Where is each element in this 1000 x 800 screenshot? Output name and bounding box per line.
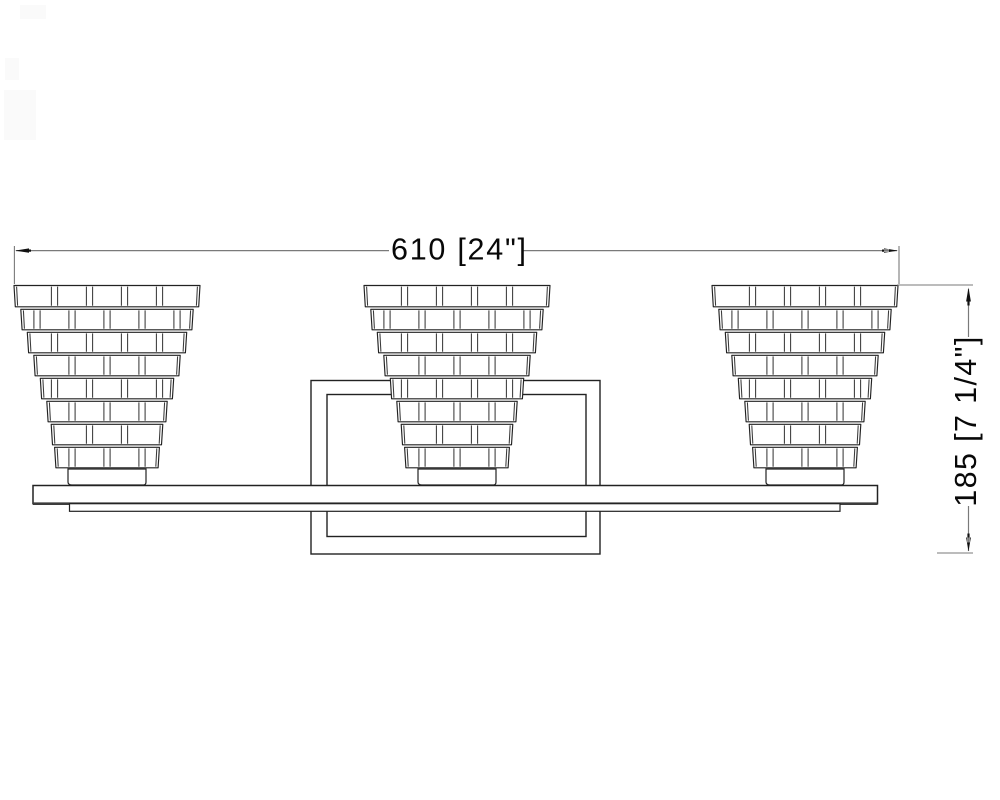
svg-text:185 [7 1/4"]: 185 [7 1/4"]: [949, 337, 983, 507]
svg-text:610 [24"]: 610 [24"]: [391, 233, 526, 267]
